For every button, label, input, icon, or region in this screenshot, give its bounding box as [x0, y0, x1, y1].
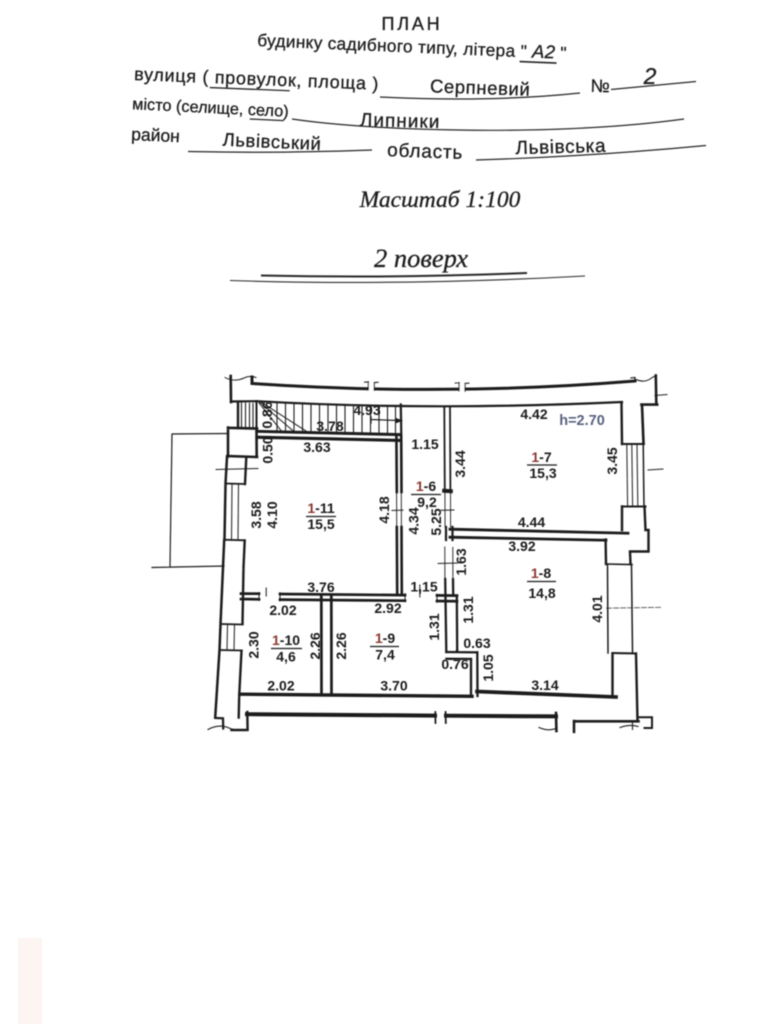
svg-text:будинку садибного типу, літера: будинку садибного типу, літера " А2 ": [257, 29, 567, 63]
svg-text:0.50: 0.50: [260, 436, 276, 463]
svg-text:9,2: 9,2: [417, 494, 437, 510]
svg-text:Серпневий: Серпневий: [430, 75, 531, 99]
svg-text:14,8: 14,8: [528, 585, 555, 601]
svg-text:1.31: 1.31: [426, 613, 442, 640]
svg-text:1.63: 1.63: [453, 548, 469, 575]
svg-text:2.30: 2.30: [246, 631, 262, 658]
svg-text:4.01: 4.01: [589, 595, 605, 622]
svg-text:3.78: 3.78: [316, 418, 343, 434]
svg-text:район: район: [131, 124, 180, 146]
svg-text:4.44: 4.44: [518, 514, 545, 530]
svg-text:3.14: 3.14: [531, 677, 558, 693]
svg-text:4.34: 4.34: [406, 507, 422, 534]
svg-text:Масштаб 1:100: Масштаб 1:100: [359, 187, 521, 213]
svg-text:4.42: 4.42: [520, 406, 547, 422]
svg-text:1-11: 1-11: [307, 500, 334, 516]
svg-text:1-7: 1-7: [531, 449, 551, 465]
svg-text:3.58: 3.58: [248, 501, 264, 528]
svg-text:2.26: 2.26: [333, 632, 349, 659]
svg-text:4.93: 4.93: [353, 402, 380, 418]
svg-text:15,5: 15,5: [307, 516, 334, 532]
svg-text:ПЛАН: ПЛАН: [382, 14, 443, 34]
svg-text:3.76: 3.76: [307, 579, 334, 595]
svg-text:1,15: 1,15: [410, 579, 437, 595]
svg-text:1.15: 1.15: [411, 436, 438, 452]
svg-text:Львівська: Львівська: [515, 136, 606, 159]
svg-text:0.63: 0.63: [463, 635, 490, 651]
svg-text:2.26: 2.26: [307, 632, 323, 659]
svg-text:Львівський: Львівський: [222, 129, 322, 154]
svg-text:h=2.70: h=2.70: [559, 413, 605, 429]
svg-text:15,3: 15,3: [529, 465, 556, 481]
svg-text:1.31: 1.31: [460, 596, 476, 623]
svg-text:№: №: [590, 76, 610, 96]
svg-text:1-9: 1-9: [375, 630, 395, 646]
svg-text:1.05: 1.05: [480, 654, 496, 681]
svg-text:4.18: 4.18: [376, 496, 392, 523]
svg-text:1-10: 1-10: [272, 632, 300, 648]
svg-text:3.44: 3.44: [452, 450, 468, 477]
svg-text:2.92: 2.92: [374, 600, 401, 616]
svg-text:4,6: 4,6: [276, 649, 296, 665]
svg-text:2.02: 2.02: [269, 602, 296, 618]
svg-text:1-8: 1-8: [531, 565, 551, 581]
svg-text:0.86: 0.86: [259, 401, 275, 428]
svg-text:1-6: 1-6: [416, 478, 436, 494]
svg-text:4.10: 4.10: [264, 501, 280, 528]
svg-text:3.92: 3.92: [508, 538, 535, 554]
svg-text:3.45: 3.45: [604, 447, 620, 474]
svg-text:місто (селище, село): місто (селище, село): [132, 95, 289, 121]
svg-text:2.02: 2.02: [267, 678, 294, 694]
svg-text:0.76: 0.76: [441, 656, 468, 672]
svg-text:5.25: 5.25: [428, 508, 444, 535]
svg-text:2 поверх: 2 поверх: [374, 243, 468, 273]
svg-text:область: область: [387, 140, 464, 164]
svg-text:3.63: 3.63: [303, 439, 330, 455]
svg-text:7,4: 7,4: [375, 647, 395, 663]
svg-text:3.70: 3.70: [380, 678, 407, 694]
